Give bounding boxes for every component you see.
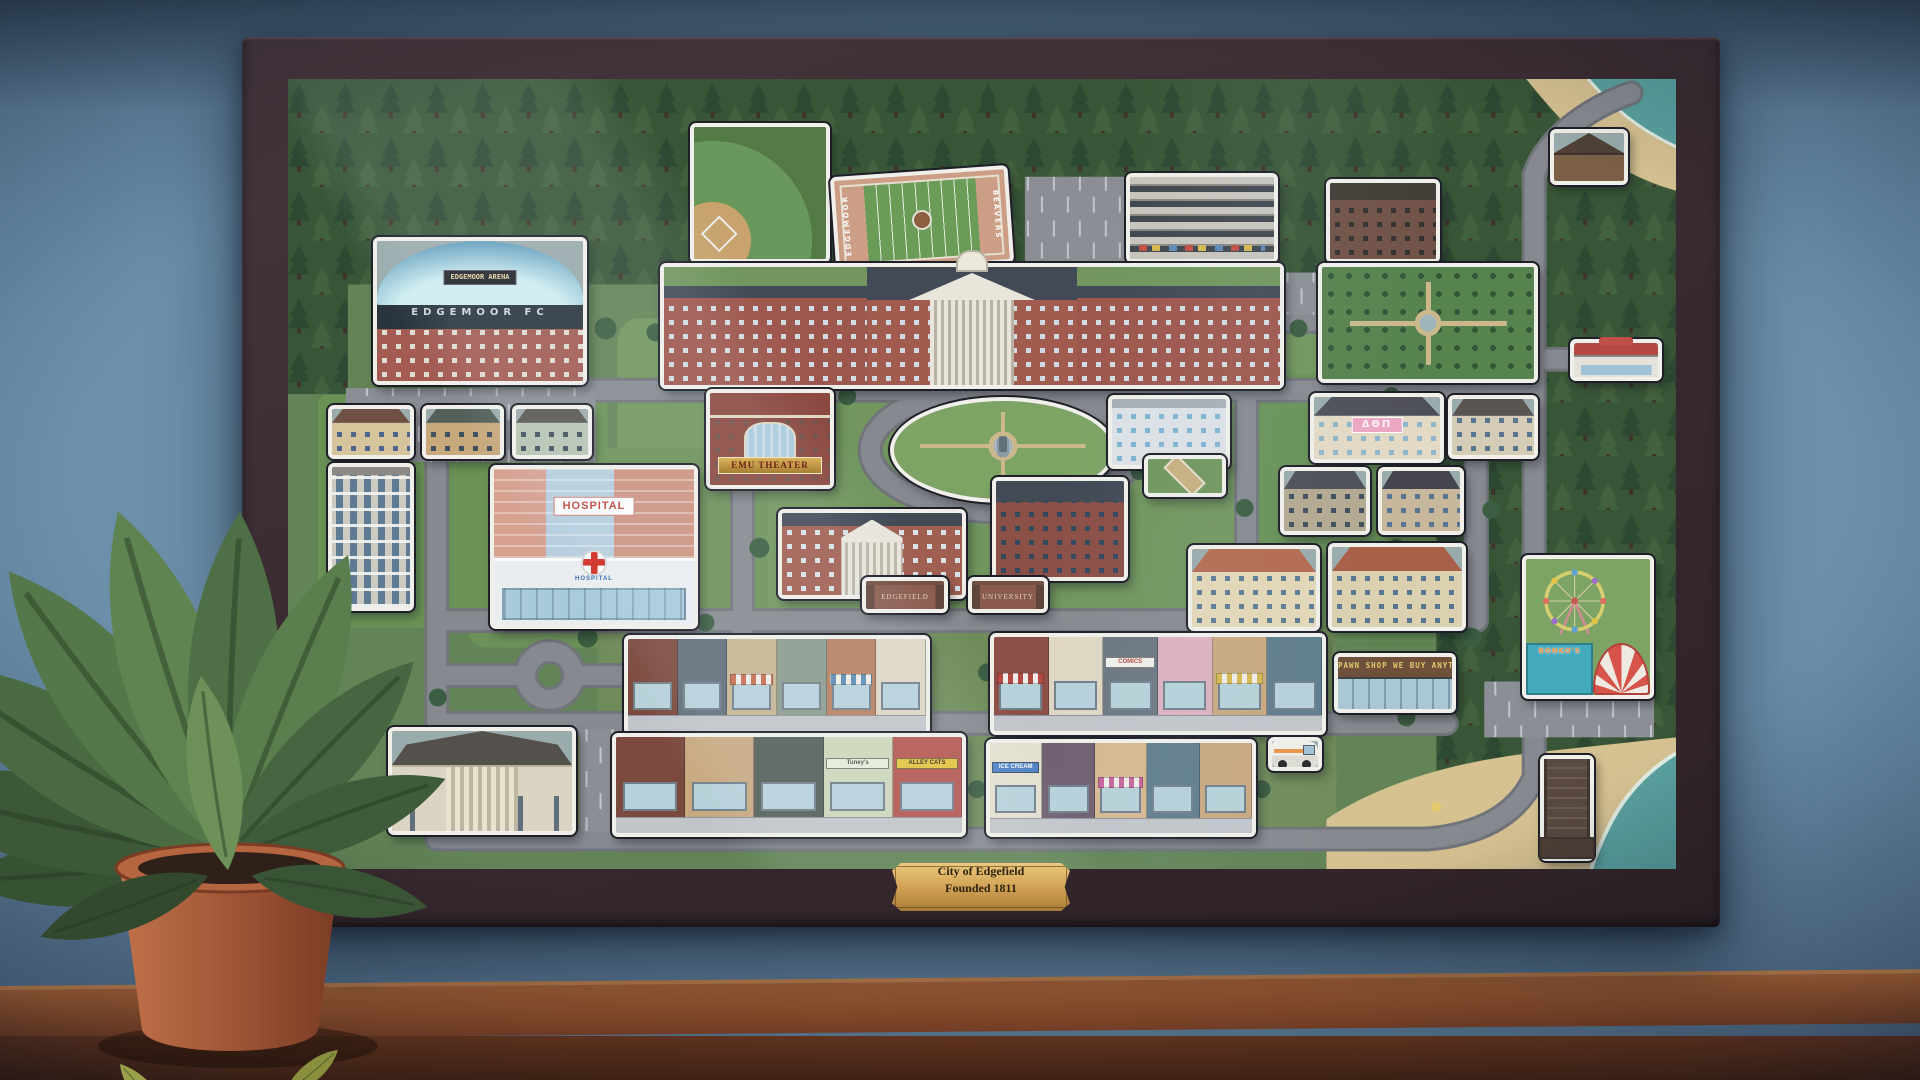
- baseball-field[interactable]: [690, 123, 830, 263]
- shops-row-east[interactable]: COMICS: [990, 633, 1326, 735]
- brick-gate: UNIVERSITY: [972, 581, 1044, 609]
- shop-window: [1152, 785, 1193, 813]
- shop-window: [830, 782, 885, 812]
- shop-window: [1218, 681, 1261, 710]
- bonkos-sign: BONKO'S: [1526, 643, 1593, 695]
- truck-body: [1272, 741, 1318, 767]
- shop-window: [1109, 681, 1152, 710]
- gate-university[interactable]: UNIVERSITY: [968, 577, 1048, 613]
- parking-garage[interactable]: [1126, 173, 1278, 263]
- football-midfield: [863, 178, 980, 262]
- baseball-diamond: [694, 127, 826, 259]
- storefront: [876, 639, 926, 715]
- shop-window: [900, 782, 955, 812]
- awning: [1098, 777, 1143, 787]
- sorority-greek-banner: ΔΘΠ: [1352, 417, 1403, 433]
- emu-theater[interactable]: EMU THEATER: [706, 389, 834, 489]
- theater-arch-window: [744, 422, 797, 461]
- map-locations: EDGEMOOR FCEDGEMOOR ARENAEDGEMOORBEAVERS…: [288, 79, 1676, 869]
- shops-row-west[interactable]: [624, 635, 930, 735]
- hospital-entrance-sign: HOSPITAL: [575, 576, 613, 582]
- gate-edgefield[interactable]: EDGEFIELD: [862, 577, 948, 613]
- cabin-roof: [1554, 133, 1624, 153]
- awning: [997, 673, 1044, 684]
- truck-windshield: [1303, 745, 1315, 755]
- shop-window: [832, 682, 871, 710]
- storefront: [1147, 743, 1199, 818]
- house[interactable]: [1378, 467, 1464, 535]
- pier[interactable]: [1540, 755, 1594, 861]
- storefront: [1267, 637, 1322, 715]
- sidewalk: [990, 818, 1252, 833]
- shop-window: [1100, 785, 1141, 813]
- storefront: [727, 639, 777, 715]
- diner[interactable]: [1570, 339, 1662, 381]
- storefront: COMICS: [1103, 637, 1158, 715]
- university-main-hall[interactable]: [660, 263, 1284, 389]
- sidewalk: [616, 817, 962, 833]
- sidewalk: [994, 715, 1322, 731]
- storefront: [1213, 637, 1268, 715]
- hospital[interactable]: HOSPITALHOSPITAL: [490, 465, 698, 629]
- potted-plant: [0, 440, 490, 1080]
- house[interactable]: [1448, 395, 1538, 459]
- sorority-house[interactable]: ΔΘΠ: [1310, 393, 1444, 463]
- plaque: City of Edgefield Founded 1811: [892, 863, 1070, 911]
- cupola: [956, 250, 988, 272]
- storefront: [678, 639, 728, 715]
- red-cross-icon: [581, 550, 607, 576]
- edgefield-map: EDGEMOOR FCEDGEMOOR ARENAEDGEMOORBEAVERS…: [288, 79, 1676, 869]
- house-mediterranean[interactable]: [1188, 545, 1320, 631]
- shop-window: [999, 681, 1042, 710]
- shop-window: [732, 682, 771, 710]
- shop-window: [1163, 681, 1206, 710]
- shop-window: [881, 682, 920, 710]
- old-apartment-building[interactable]: [1326, 179, 1440, 263]
- shop-window: [1054, 681, 1097, 710]
- storefront: [777, 639, 827, 715]
- shop-window: [623, 782, 678, 812]
- shops-row-south-east[interactable]: ICE CREAM: [986, 739, 1256, 837]
- plaza-lawn: [1148, 459, 1222, 493]
- shop-window: [683, 682, 722, 710]
- storefront: [1158, 637, 1213, 715]
- awning: [1216, 673, 1263, 684]
- gate-text: UNIVERSITY: [982, 593, 1034, 601]
- diner-roof: [1574, 343, 1658, 355]
- storefront: ICE CREAM: [990, 743, 1042, 818]
- storefront: [1049, 637, 1104, 715]
- shop-sign: Tuney's: [826, 758, 889, 769]
- shops-row-south-west[interactable]: Tuney'sALLEY CATS: [612, 733, 966, 837]
- stadium-roof-text: EDGEMOOR FC: [377, 305, 583, 329]
- storefront: Tuney's: [824, 737, 893, 817]
- plaque-border: [895, 866, 1067, 908]
- forest-cabin[interactable]: [1550, 129, 1628, 185]
- ice-cream-truck[interactable]: [1268, 737, 1322, 771]
- shop-window: [1273, 681, 1316, 710]
- sidewalk: [628, 715, 926, 731]
- storefront: [685, 737, 754, 817]
- storefront: [827, 639, 877, 715]
- pawn-shop[interactable]: PAWN SHOP WE BUY ANYTHING: [1334, 653, 1456, 713]
- shop-window: [782, 682, 821, 710]
- campus-plaza[interactable]: [1144, 455, 1226, 497]
- storefront: [754, 737, 823, 817]
- ferris-wheel: [1530, 562, 1619, 644]
- pawn-shop-sign: PAWN SHOP WE BUY ANYTHING: [1338, 657, 1452, 677]
- amusement-park-bonkos[interactable]: BONKO'S: [1522, 555, 1654, 699]
- stadium-edgemoor-arena[interactable]: EDGEMOOR FCEDGEMOOR ARENA: [373, 237, 587, 385]
- parked-cars: [1139, 245, 1266, 251]
- carnival-tent: [1593, 643, 1650, 695]
- scene: EDGEMOOR FCEDGEMOOR ARENAEDGEMOORBEAVERS…: [0, 0, 1920, 1080]
- brick-gate: EDGEFIELD: [866, 581, 944, 609]
- dormitory-building[interactable]: [992, 477, 1128, 581]
- shop-window: [995, 785, 1036, 813]
- storefront: [1200, 743, 1252, 818]
- arena-marquee: EDGEMOOR ARENA: [443, 270, 516, 285]
- shop-window: [761, 782, 816, 812]
- shop-window: [1048, 785, 1089, 813]
- shop-window: [1205, 785, 1246, 813]
- house[interactable]: [1280, 467, 1370, 535]
- awning: [730, 674, 773, 684]
- shop-window: [692, 782, 747, 812]
- storefront: [1042, 743, 1094, 818]
- theater-marquee: EMU THEATER: [718, 457, 821, 474]
- pier-deck: [1544, 759, 1590, 857]
- gate-text: EDGEFIELD: [881, 593, 929, 601]
- house[interactable]: [512, 405, 592, 459]
- storefront: [616, 737, 685, 817]
- storefront: ALLEY CATS: [893, 737, 962, 817]
- hospital-sign: HOSPITAL: [554, 497, 635, 516]
- shop-sign: ALLEY CATS: [896, 758, 959, 769]
- fountain-statue: [999, 436, 1007, 452]
- shop-window: [633, 682, 672, 710]
- storefront: [1095, 743, 1147, 818]
- shop-sign: ICE CREAM: [992, 762, 1039, 773]
- storefront: [628, 639, 678, 715]
- garden-paths: [1322, 267, 1534, 379]
- storefront: [994, 637, 1049, 715]
- pawn-shop-window: [1338, 677, 1452, 709]
- shop-sign: COMICS: [1105, 657, 1154, 668]
- formal-garden[interactable]: [1318, 263, 1538, 383]
- awning: [830, 674, 873, 684]
- house-mediterranean[interactable]: [1328, 543, 1466, 631]
